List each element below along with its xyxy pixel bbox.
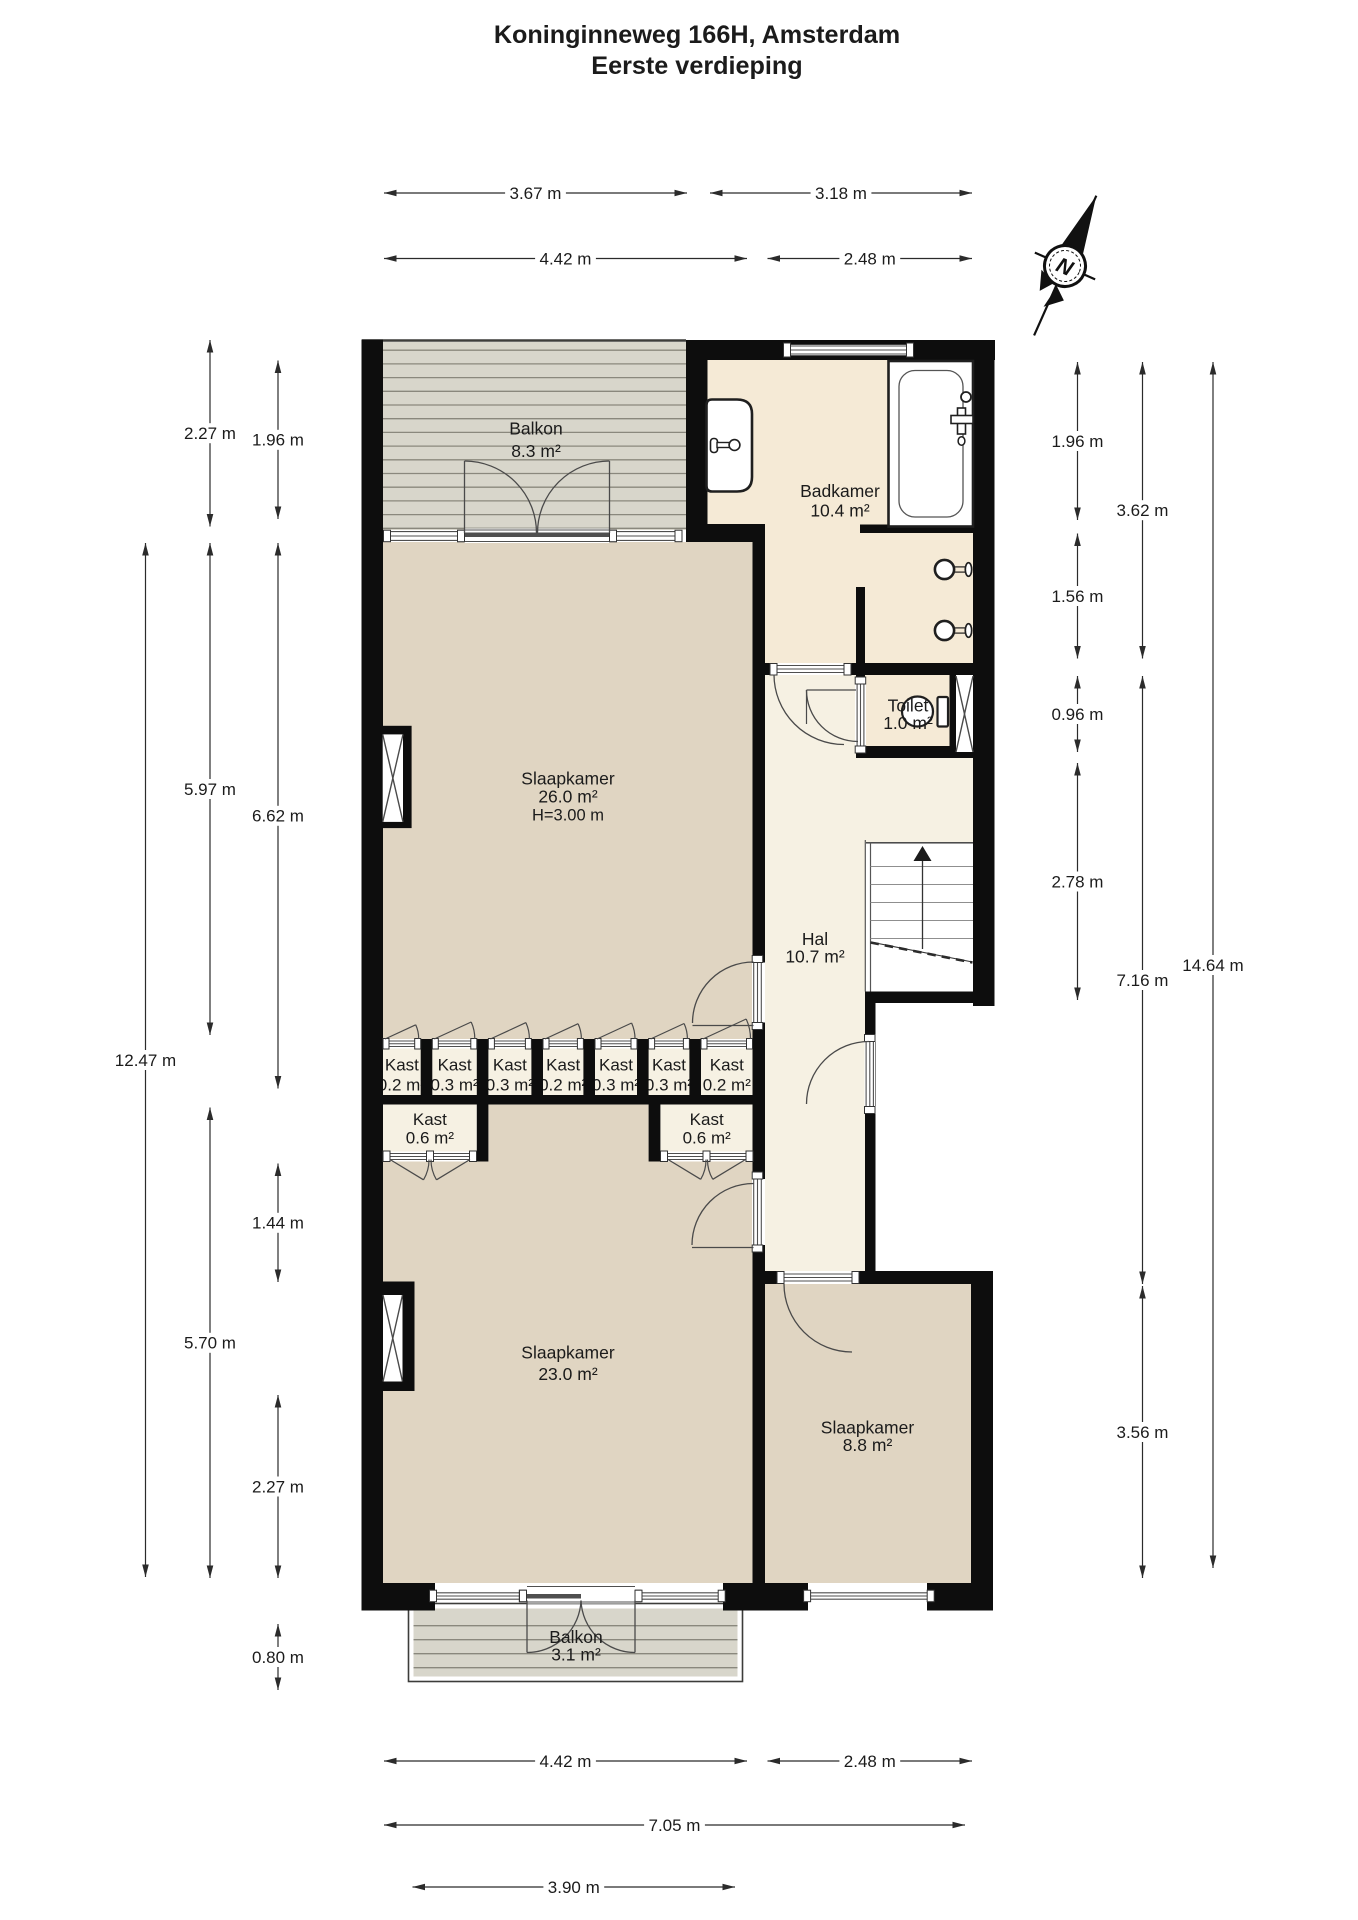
svg-text:3.62 m: 3.62 m — [1117, 501, 1169, 520]
svg-text:0.2 m²: 0.2 m² — [539, 1076, 588, 1095]
svg-text:Kast: Kast — [385, 1056, 419, 1075]
svg-text:5.70 m: 5.70 m — [184, 1334, 236, 1353]
svg-text:12.47 m: 12.47 m — [115, 1051, 176, 1070]
svg-text:0.3 m²: 0.3 m² — [486, 1076, 535, 1095]
svg-text:14.64 m: 14.64 m — [1182, 956, 1243, 975]
svg-text:26.0 m²: 26.0 m² — [538, 787, 597, 807]
svg-text:10.7 m²: 10.7 m² — [785, 947, 844, 967]
svg-text:0.2 m²: 0.2 m² — [703, 1076, 752, 1095]
svg-text:0.96 m: 0.96 m — [1052, 705, 1104, 724]
svg-text:0.2 m²: 0.2 m² — [378, 1076, 427, 1095]
svg-text:1.96 m: 1.96 m — [1052, 432, 1104, 451]
svg-text:1.44 m: 1.44 m — [252, 1214, 304, 1233]
svg-text:0.6 m²: 0.6 m² — [683, 1129, 732, 1148]
svg-text:2.48 m: 2.48 m — [844, 1752, 896, 1771]
svg-text:0.3 m²: 0.3 m² — [592, 1076, 641, 1095]
svg-text:Kast: Kast — [599, 1056, 633, 1075]
svg-text:Koninginneweg 166H, Amsterdam: Koninginneweg 166H, Amsterdam — [494, 21, 900, 49]
svg-text:2.78 m: 2.78 m — [1052, 872, 1104, 891]
svg-text:7.16 m: 7.16 m — [1117, 971, 1169, 990]
svg-text:0.80 m: 0.80 m — [252, 1648, 304, 1667]
svg-text:6.62 m: 6.62 m — [252, 807, 304, 826]
svg-text:5.97 m: 5.97 m — [184, 780, 236, 799]
svg-text:3.90 m: 3.90 m — [548, 1878, 600, 1897]
svg-text:3.67 m: 3.67 m — [510, 184, 562, 203]
svg-text:1.0 m²: 1.0 m² — [883, 713, 933, 733]
svg-text:4.42 m: 4.42 m — [540, 249, 592, 268]
svg-text:3.56 m: 3.56 m — [1117, 1423, 1169, 1442]
svg-text:H=3.00 m: H=3.00 m — [532, 807, 604, 825]
svg-text:0.6 m²: 0.6 m² — [406, 1129, 455, 1148]
svg-text:Slaapkamer: Slaapkamer — [521, 1343, 615, 1363]
svg-text:0.3 m²: 0.3 m² — [431, 1076, 480, 1095]
svg-text:2.27 m: 2.27 m — [252, 1477, 304, 1496]
svg-text:7.05 m: 7.05 m — [649, 1816, 701, 1835]
svg-text:Slaapkamer: Slaapkamer — [521, 769, 615, 789]
svg-text:Kast: Kast — [413, 1110, 447, 1129]
svg-text:3.1 m²: 3.1 m² — [551, 1645, 601, 1665]
svg-text:2.48 m: 2.48 m — [844, 249, 896, 268]
svg-text:Kast: Kast — [546, 1056, 580, 1075]
svg-text:Badkamer: Badkamer — [800, 481, 880, 501]
svg-text:1.96 m: 1.96 m — [252, 431, 304, 450]
svg-text:Kast: Kast — [690, 1110, 724, 1129]
svg-text:4.42 m: 4.42 m — [540, 1752, 592, 1771]
svg-text:2.27 m: 2.27 m — [184, 424, 236, 443]
svg-text:0.3 m²: 0.3 m² — [645, 1076, 694, 1095]
svg-text:1.56 m: 1.56 m — [1052, 587, 1104, 606]
svg-text:Balkon: Balkon — [509, 419, 563, 439]
svg-text:Kast: Kast — [652, 1056, 686, 1075]
svg-text:3.18 m: 3.18 m — [815, 184, 867, 203]
svg-text:23.0 m²: 23.0 m² — [538, 1364, 597, 1384]
svg-text:Kast: Kast — [438, 1056, 472, 1075]
svg-text:Eerste verdieping: Eerste verdieping — [591, 52, 802, 80]
svg-text:Kast: Kast — [493, 1056, 527, 1075]
svg-text:Kast: Kast — [710, 1056, 744, 1075]
svg-text:10.4 m²: 10.4 m² — [810, 501, 869, 521]
svg-text:8.8 m²: 8.8 m² — [843, 1435, 893, 1455]
svg-text:8.3 m²: 8.3 m² — [511, 441, 561, 461]
